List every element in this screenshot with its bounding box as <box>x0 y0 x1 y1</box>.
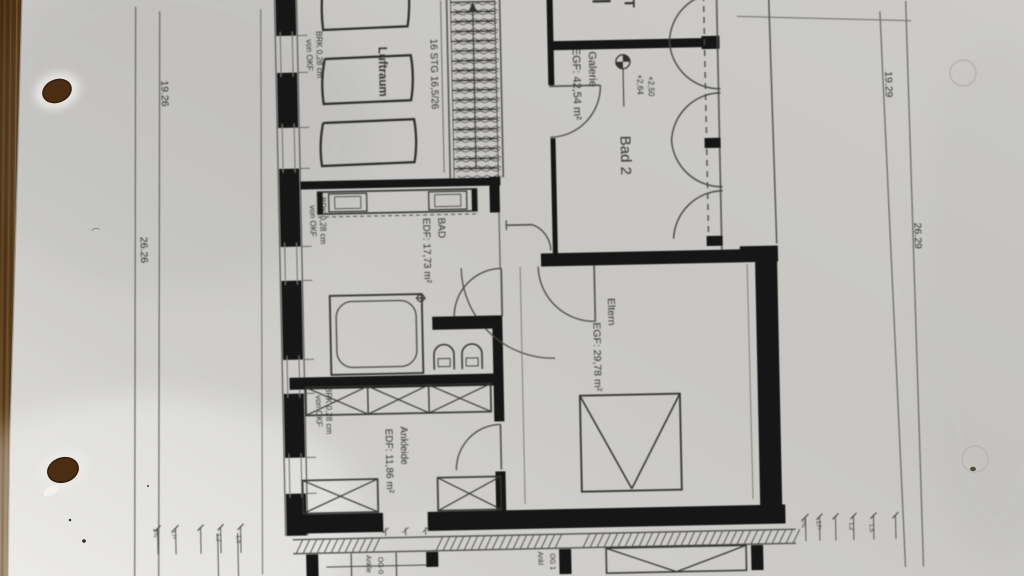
svg-text:Bad 2: Bad 2 <box>616 136 634 176</box>
svg-text:17⁵: 17⁵ <box>170 530 177 540</box>
svg-text:Ankle: Ankle <box>364 555 371 573</box>
svg-text:Galerie: Galerie <box>586 51 599 87</box>
svg-text:2¾: 2¾ <box>799 519 805 528</box>
svg-text:Eltern: Eltern <box>605 298 618 326</box>
svg-text:Luftraum: Luftraum <box>376 47 389 97</box>
svg-text:von OKF: von OKF <box>308 205 318 237</box>
svg-text:BRK 0,28 cm: BRK 0,28 cm <box>324 387 334 435</box>
svg-text:1,2: 1,2 <box>848 522 854 531</box>
svg-text:von OKF: von OKF <box>304 39 314 71</box>
svg-text:EDF: 17,73 m²: EDF: 17,73 m² <box>420 218 432 284</box>
svg-text:16 STG 16,5/26: 16 STG 16,5/26 <box>427 39 439 110</box>
svg-text:19.26: 19.26 <box>158 80 171 107</box>
svg-text:BAD: BAD <box>435 217 446 238</box>
svg-text:2¾: 2¾ <box>152 529 158 538</box>
svg-text:EGF: 29,78 m²: EGF: 29,78 m² <box>590 322 603 392</box>
svg-text:+2,64: +2,64 <box>635 74 644 95</box>
svg-text:OG-0: OG-0 <box>376 557 383 574</box>
svg-text:OG 1: OG 1 <box>548 553 555 570</box>
svg-text:17⁵: 17⁵ <box>815 521 822 531</box>
svg-text:EGF: 42,54 m²: EGF: 42,54 m² <box>570 48 584 121</box>
svg-text:26.26: 26.26 <box>137 237 150 264</box>
svg-text:Ankl: Ankl <box>536 552 543 566</box>
svg-text:EDF: 11,86 m²: EDF: 11,86 m² <box>383 429 395 494</box>
svg-text:Ankleide: Ankleide <box>397 426 409 465</box>
svg-text:+2,50: +2,50 <box>646 76 655 97</box>
svg-text:1,5: 1,5 <box>868 524 874 533</box>
svg-text:19.29: 19.29 <box>882 71 895 98</box>
svg-text:T: T <box>621 0 638 8</box>
svg-text:26.29: 26.29 <box>911 222 924 249</box>
